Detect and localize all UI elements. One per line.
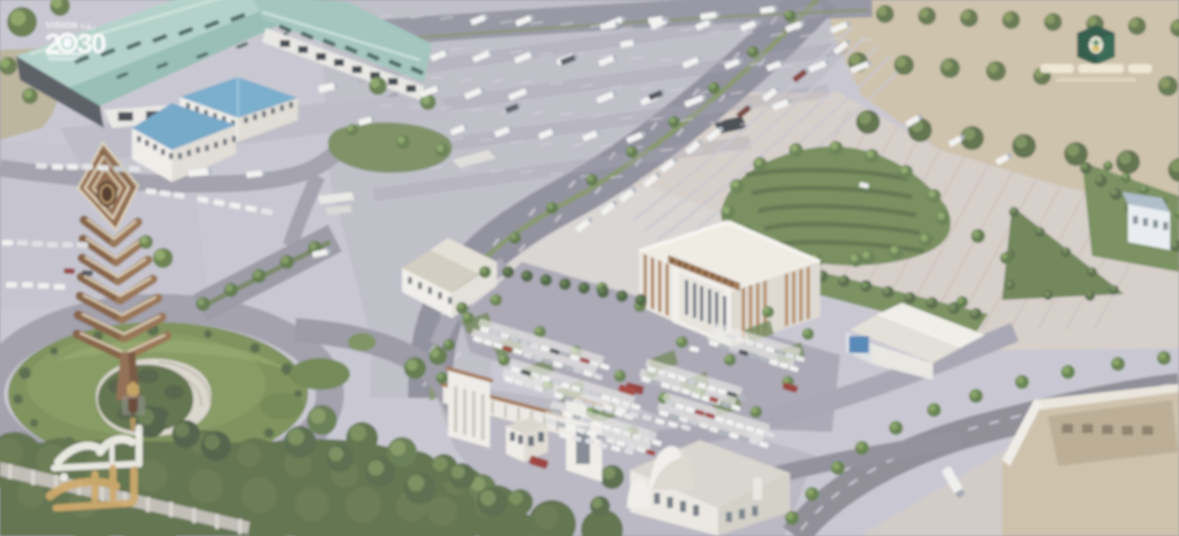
svg-text:0: 0 (91, 28, 107, 59)
